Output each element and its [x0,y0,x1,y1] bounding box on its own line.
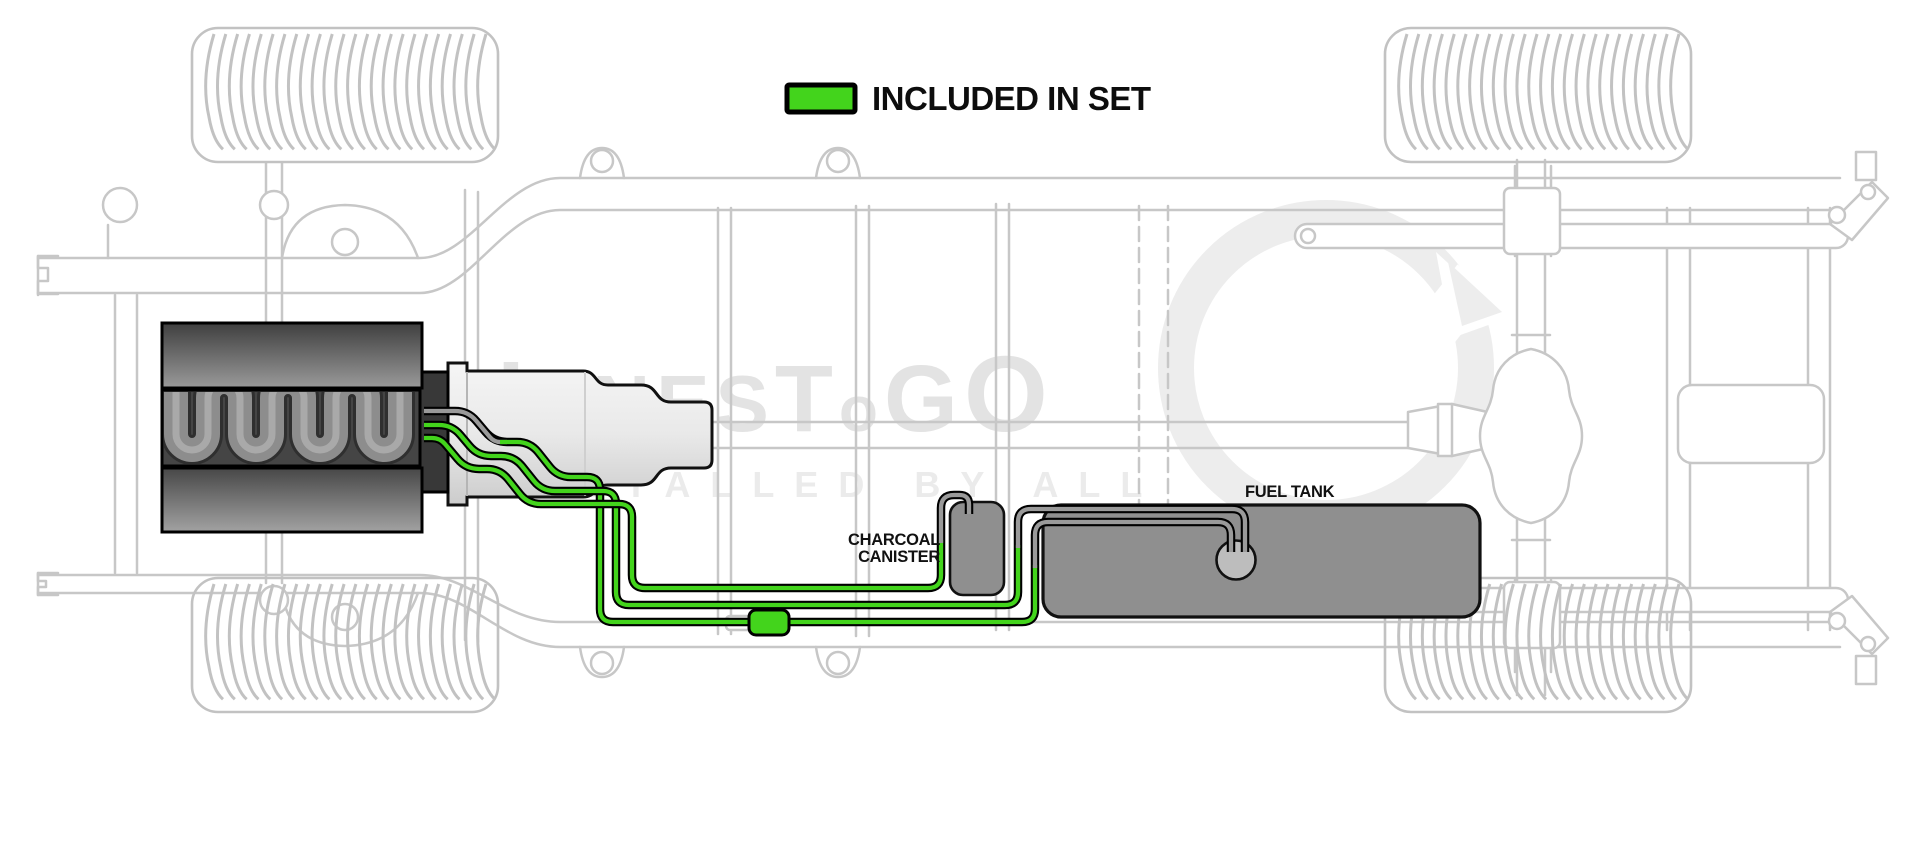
engine-bellhousing [420,372,448,492]
charcoal-canister-label-line1: CHARCOAL [848,531,940,549]
legend-label: INCLUDED IN SET [872,80,1151,117]
spare-winch-plate [1678,385,1824,463]
fuel-line-diagram: LINESToGO INSTALLED BY ALL [0,0,1930,841]
line-connector-block [749,610,789,635]
tire-front-left [192,28,498,162]
engine-valve-cover-bottom [162,468,422,532]
engine-valve-cover-top [162,323,422,388]
legend-swatch [787,85,855,112]
engine [162,323,422,532]
charcoal-canister-label-line2: CANISTER [858,548,940,566]
fuel-pump-module [1217,541,1256,580]
charcoal-canister [950,502,1004,595]
watermark-swoosh-ring [1176,218,1476,518]
legend: INCLUDED IN SET [787,80,1151,117]
tire-rear-left [1385,28,1691,162]
fuel-tank-label: FUEL TANK [1245,483,1335,501]
